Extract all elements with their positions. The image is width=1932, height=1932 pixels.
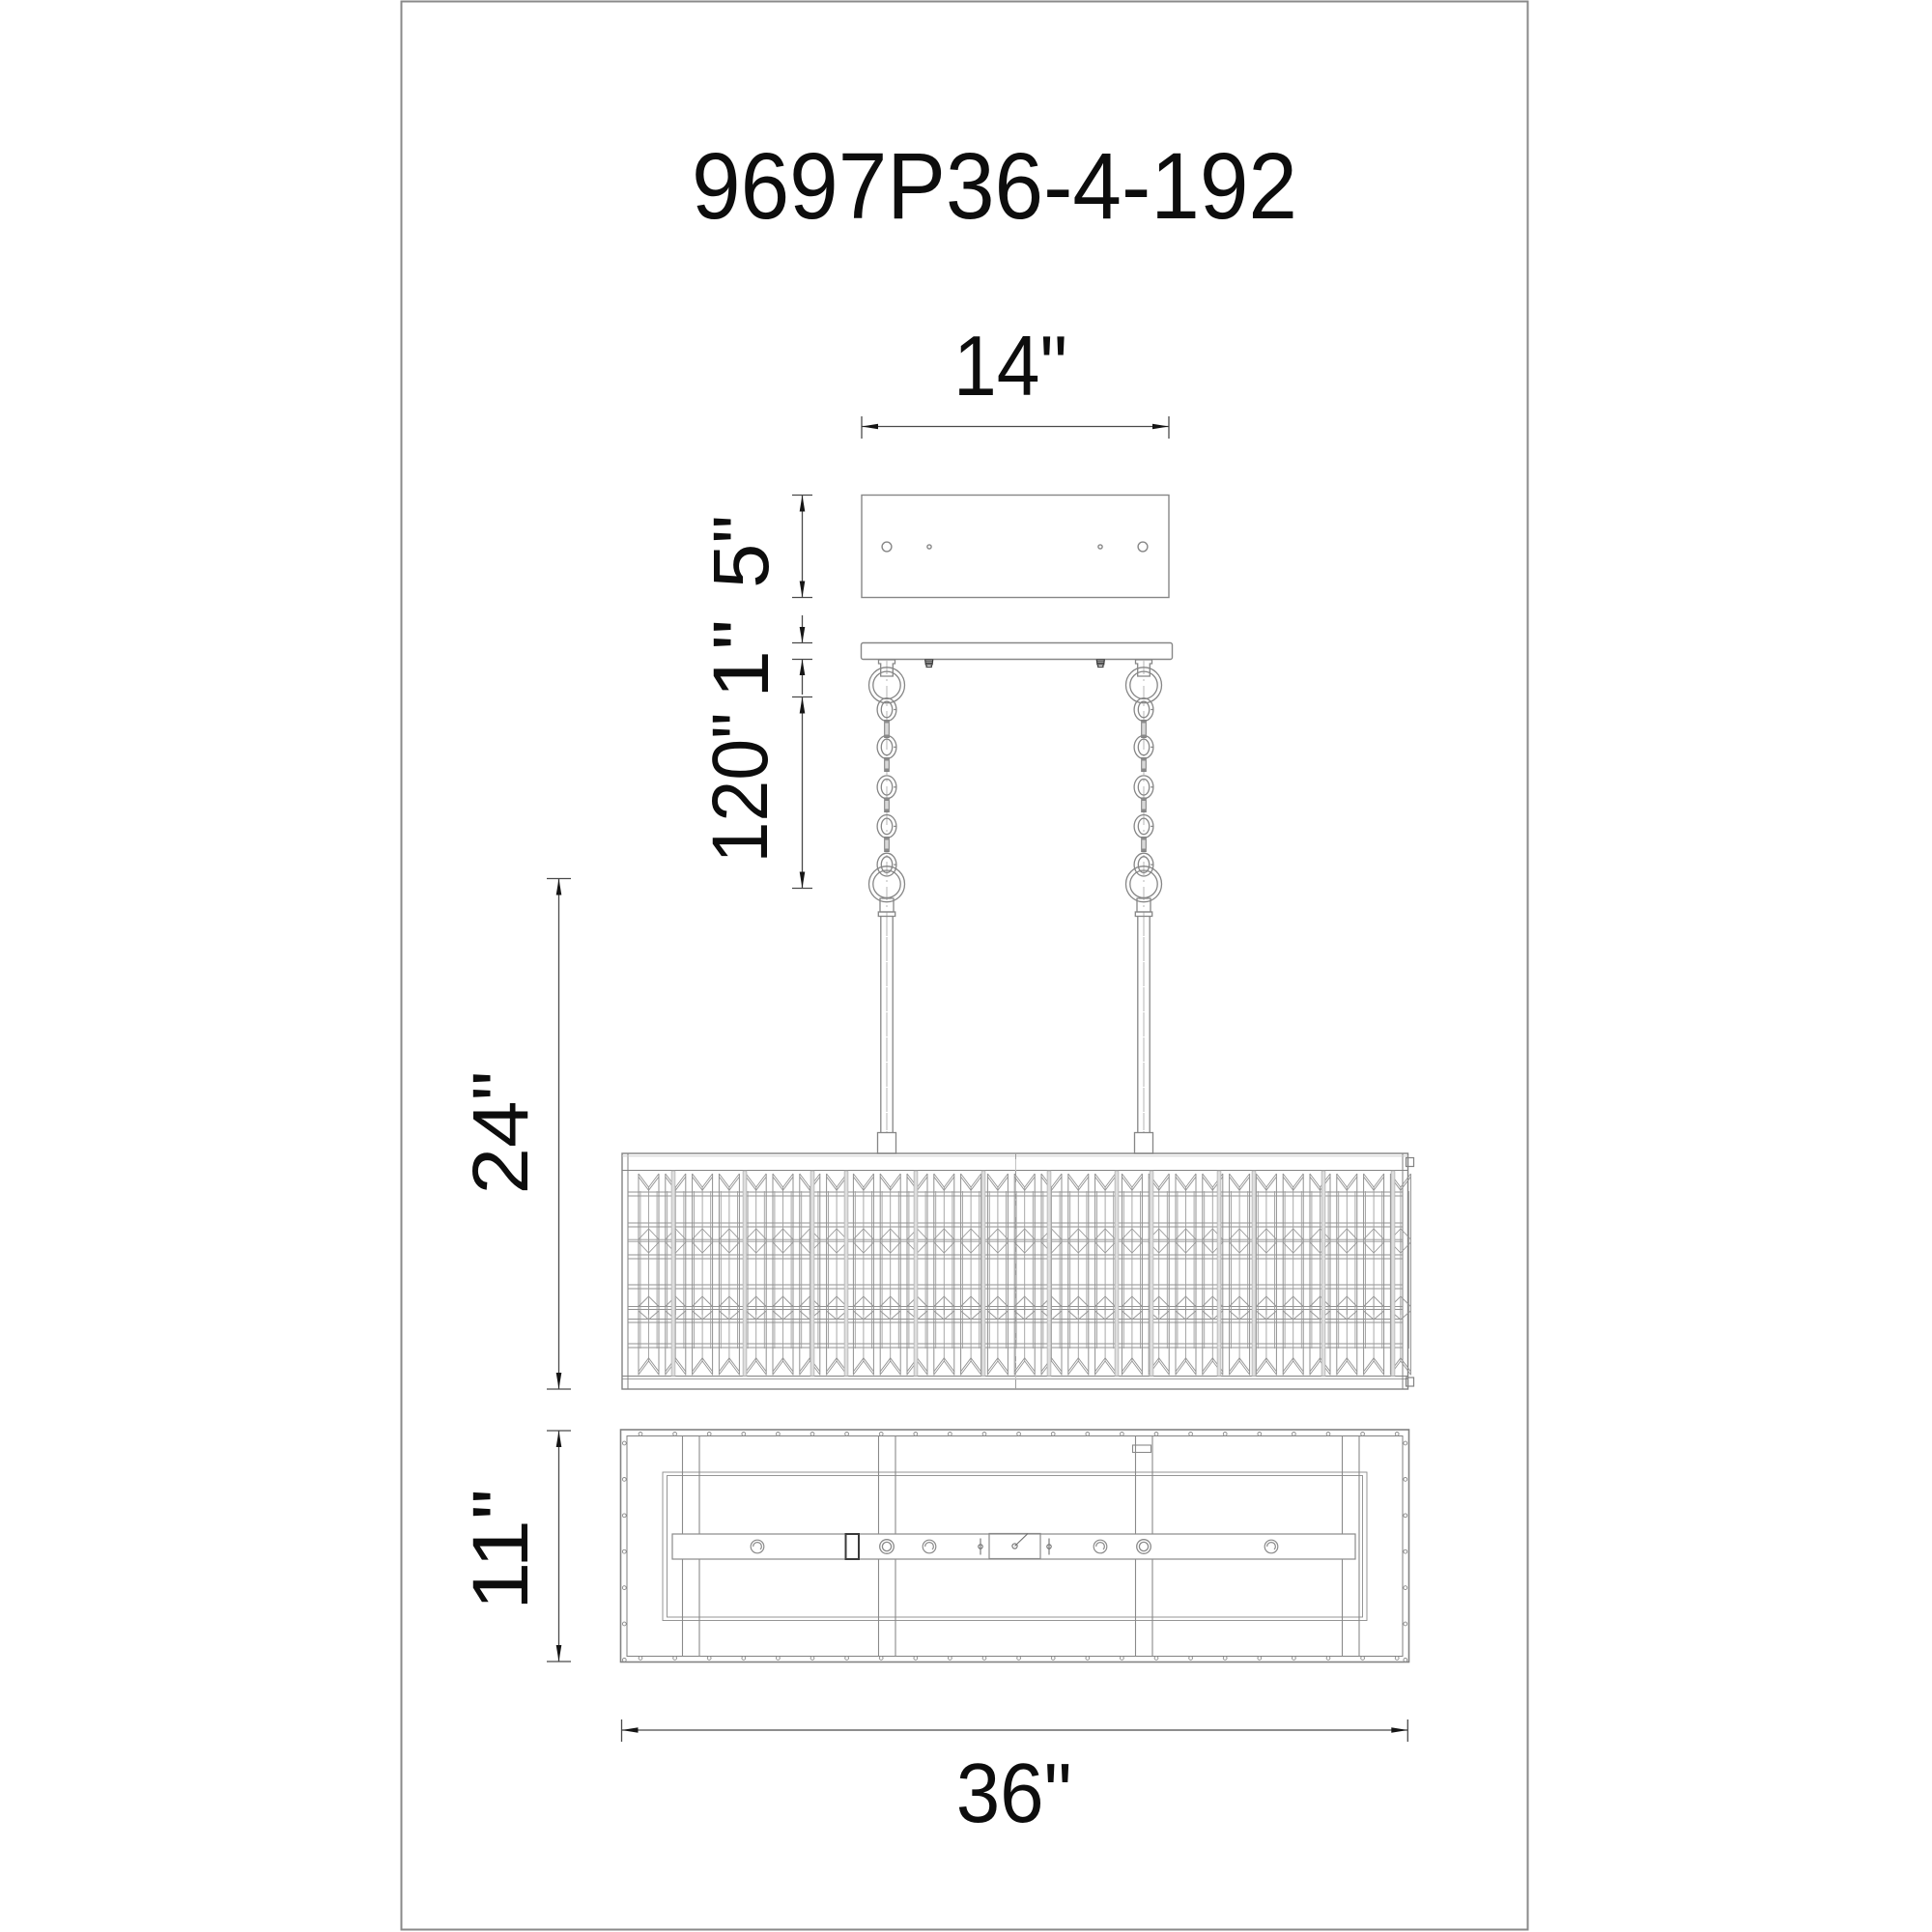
svg-text:36": 36" bbox=[956, 1747, 1072, 1840]
svg-text:9697P36-4-192: 9697P36-4-192 bbox=[692, 133, 1297, 239]
svg-text:5": 5" bbox=[697, 515, 785, 588]
svg-text:120": 120" bbox=[696, 713, 784, 864]
svg-text:24": 24" bbox=[457, 1071, 545, 1195]
svg-text:11": 11" bbox=[457, 1489, 545, 1610]
svg-text:1": 1" bbox=[697, 619, 785, 698]
svg-text:14": 14" bbox=[953, 318, 1067, 413]
